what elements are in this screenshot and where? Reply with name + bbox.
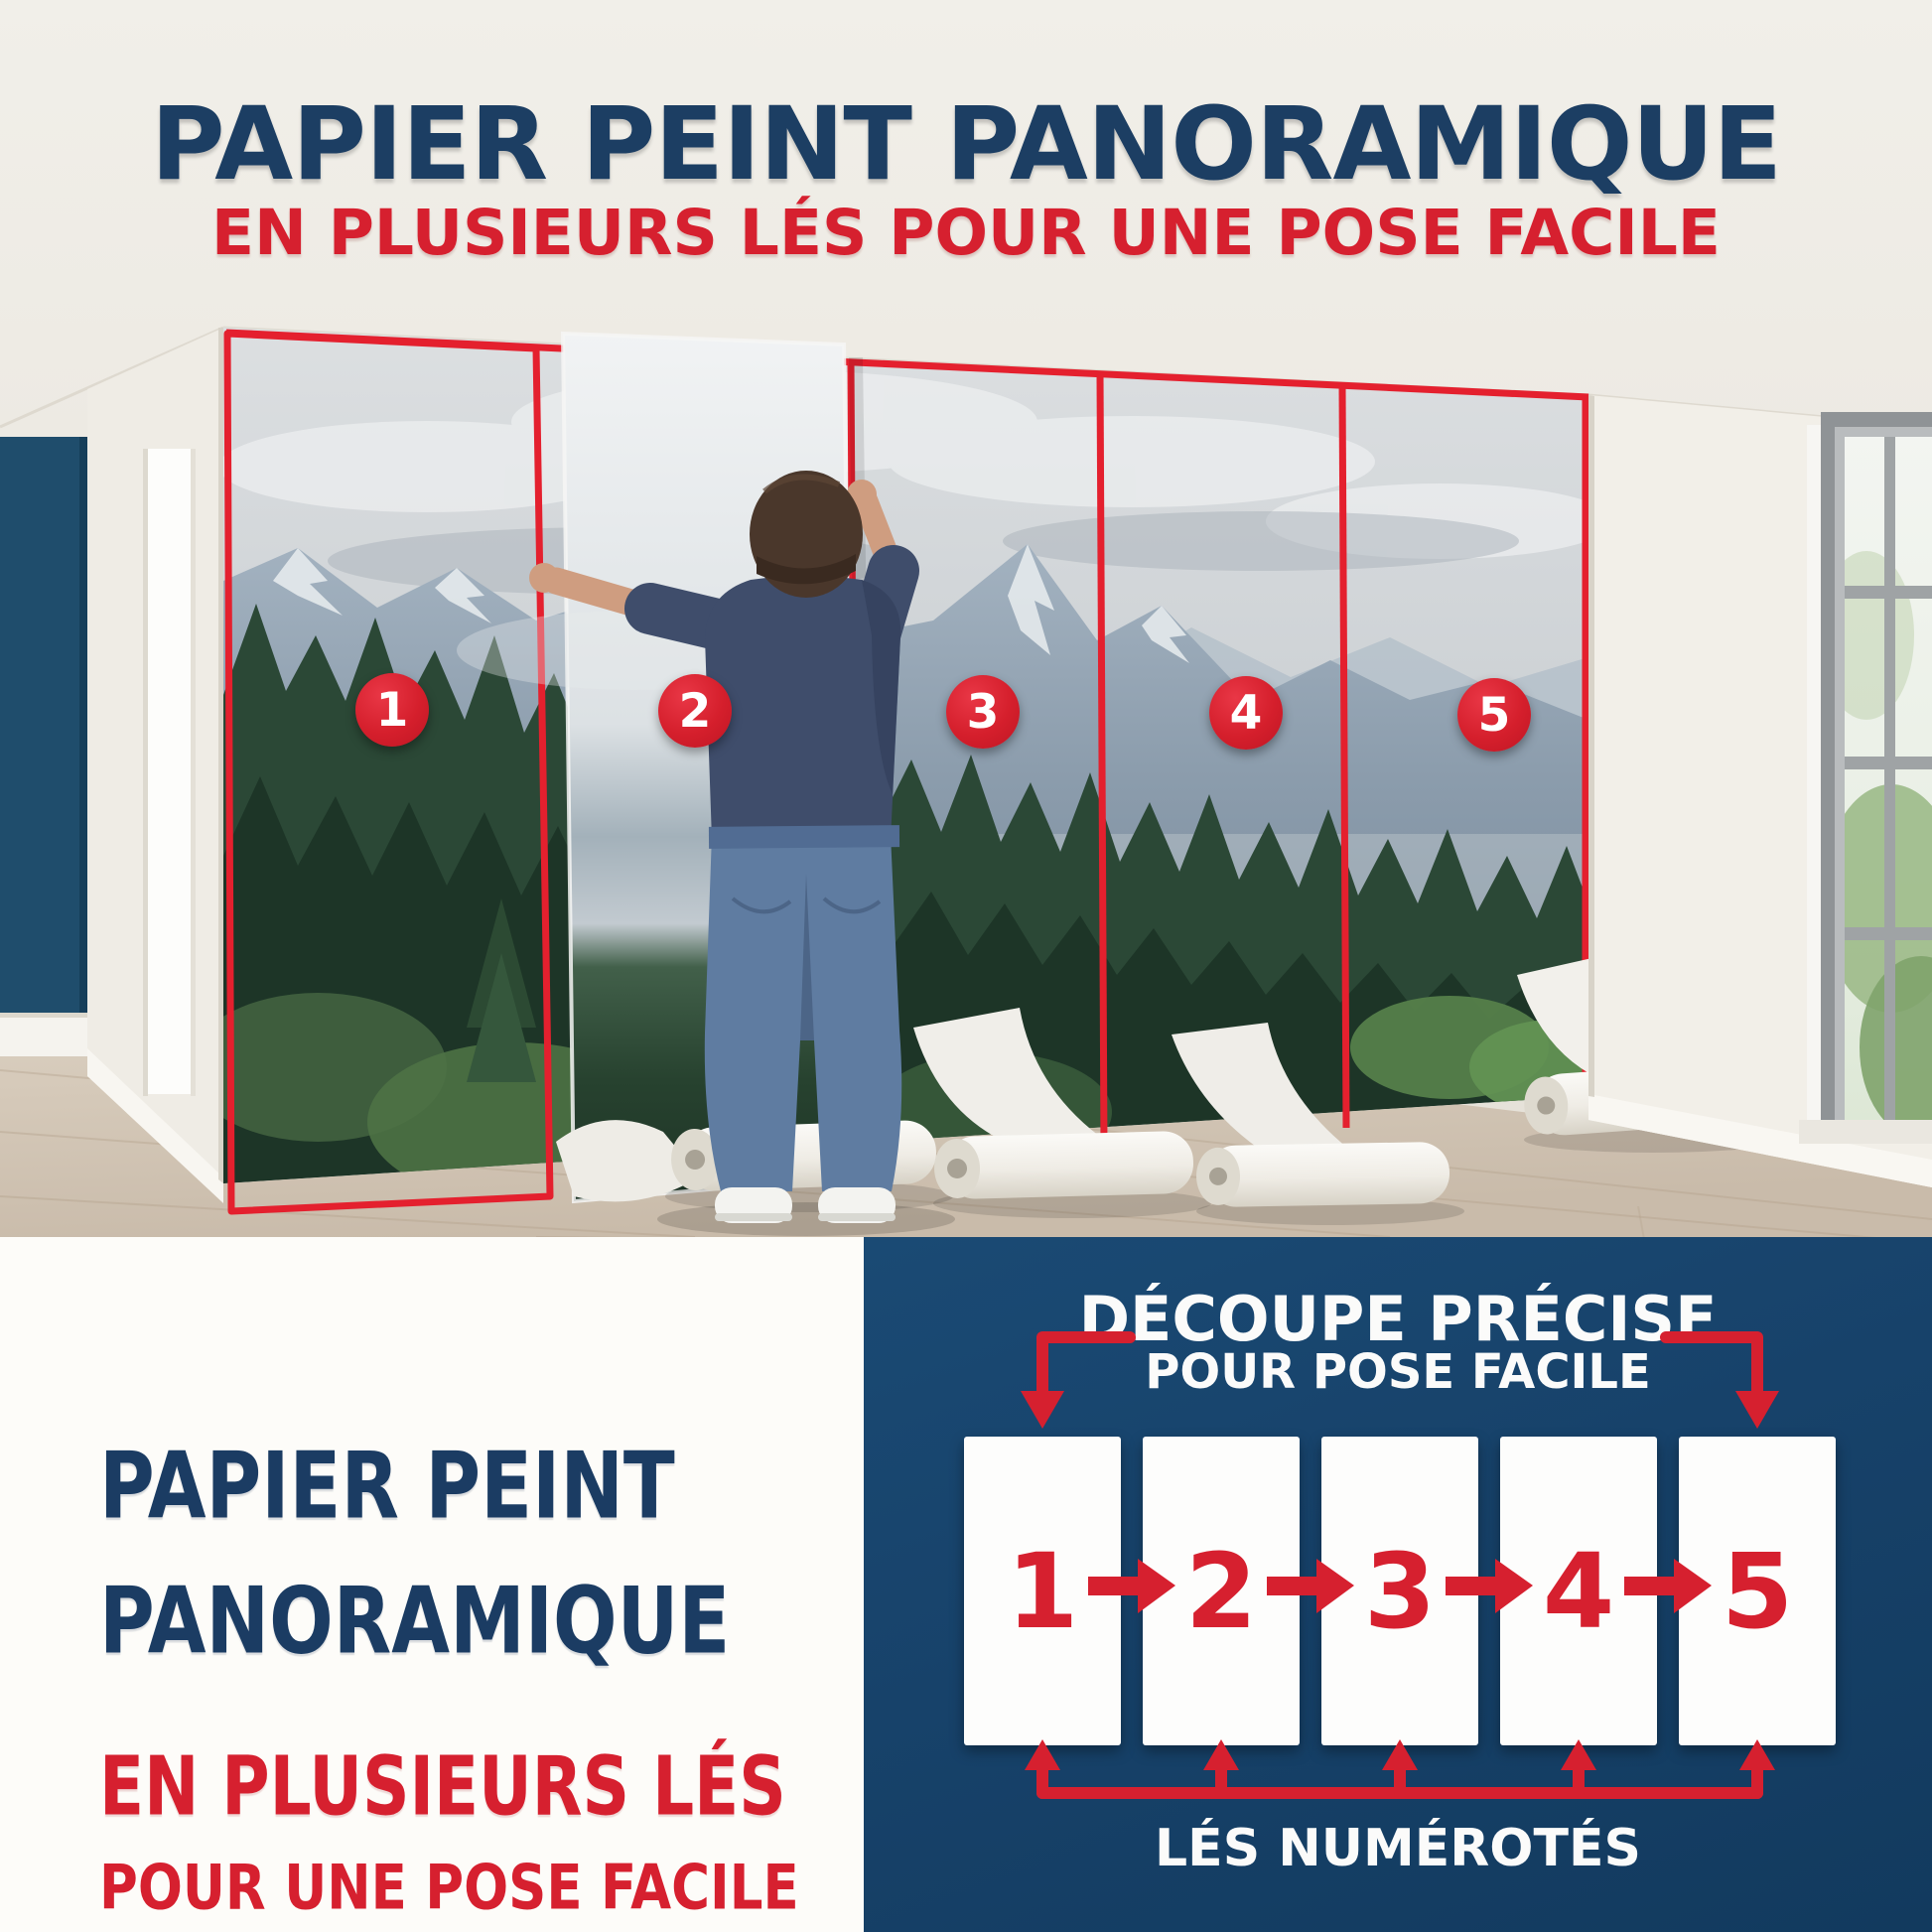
arrow-right-icon: [1088, 1559, 1175, 1613]
strip-badge-4: 4: [1209, 676, 1283, 750]
arrowhead-up-icon: [1739, 1739, 1775, 1770]
arrow-right-icon: [1446, 1559, 1533, 1613]
arrowhead-up-icon: [1025, 1739, 1060, 1770]
arrow-down-left: [1042, 1337, 1130, 1394]
doorway-wall: [87, 328, 223, 1203]
strip-badge-2-number: 2: [679, 684, 712, 739]
bottom-left-subtitle-line1: EN PLUSIEURS LÉS: [99, 1739, 786, 1834]
strip-badge-4-number: 4: [1230, 686, 1263, 741]
bottom-left-title-line2: PANORAMIQUE: [99, 1567, 730, 1675]
arrow-down-right: [1666, 1337, 1757, 1394]
page-subtitle: EN PLUSIEURS LÉS POUR UNE POSE FACILE: [0, 197, 1932, 269]
infographic-canvas: PAPIER PEINT PANORAMIQUE EN PLUSIEURS LÉ…: [0, 0, 1932, 1932]
left-hand: [529, 563, 559, 593]
page-title: PAPIER PEINT PANORAMIQUE: [0, 85, 1932, 204]
arrowhead-up-icon: [1382, 1739, 1418, 1770]
strip-badge-1: 1: [355, 673, 429, 747]
arrow-right-icon: [1624, 1559, 1712, 1613]
strip-badge-3: 3: [946, 675, 1020, 749]
strip-badge-1-number: 1: [376, 683, 409, 738]
window: [1799, 412, 1932, 1144]
arrowhead-up-icon: [1203, 1739, 1239, 1770]
mural-wall: [189, 328, 1638, 1226]
left-accent-wall: [0, 437, 87, 1056]
bottom-left-subtitle-line2: POUR UNE POSE FACILE: [99, 1853, 799, 1924]
arrowhead-down-icon: [1021, 1391, 1064, 1429]
window-sill: [1799, 1120, 1932, 1144]
strip-badge-5-number: 5: [1478, 688, 1511, 743]
arrowhead-up-icon: [1561, 1739, 1596, 1770]
strip-badge-2: 2: [658, 674, 732, 748]
strip-badge-5: 5: [1457, 678, 1531, 752]
arrow-right-icon: [1267, 1559, 1354, 1613]
diagram-caption: LÉS NUMÉROTÉS: [864, 1819, 1932, 1878]
arrowhead-down-icon: [1735, 1391, 1779, 1429]
bottom-left-title-line1: PAPIER PEINT: [99, 1432, 675, 1540]
strip-badge-3-number: 3: [967, 685, 1000, 740]
